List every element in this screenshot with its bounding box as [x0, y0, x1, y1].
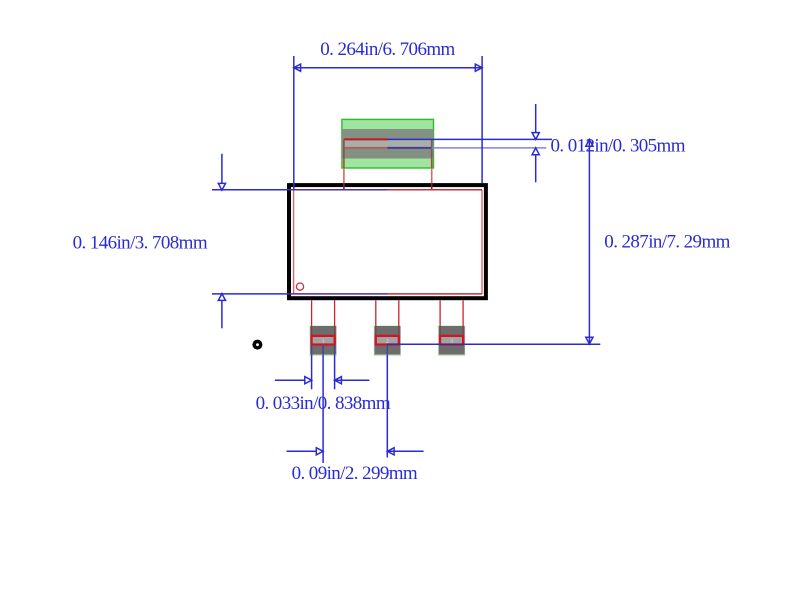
svg-text:0. 012in/0. 305mm: 0. 012in/0. 305mm — [551, 135, 686, 156]
svg-text:1: 1 — [322, 339, 325, 345]
svg-text:0. 146in/3. 708mm: 0. 146in/3. 708mm — [73, 232, 208, 253]
svg-text:0. 264in/6. 706mm: 0. 264in/6. 706mm — [320, 39, 455, 60]
svg-text:0. 09in/2. 299mm: 0. 09in/2. 299mm — [292, 463, 418, 484]
svg-text:0. 287in/7. 29mm: 0. 287in/7. 29mm — [604, 231, 730, 252]
